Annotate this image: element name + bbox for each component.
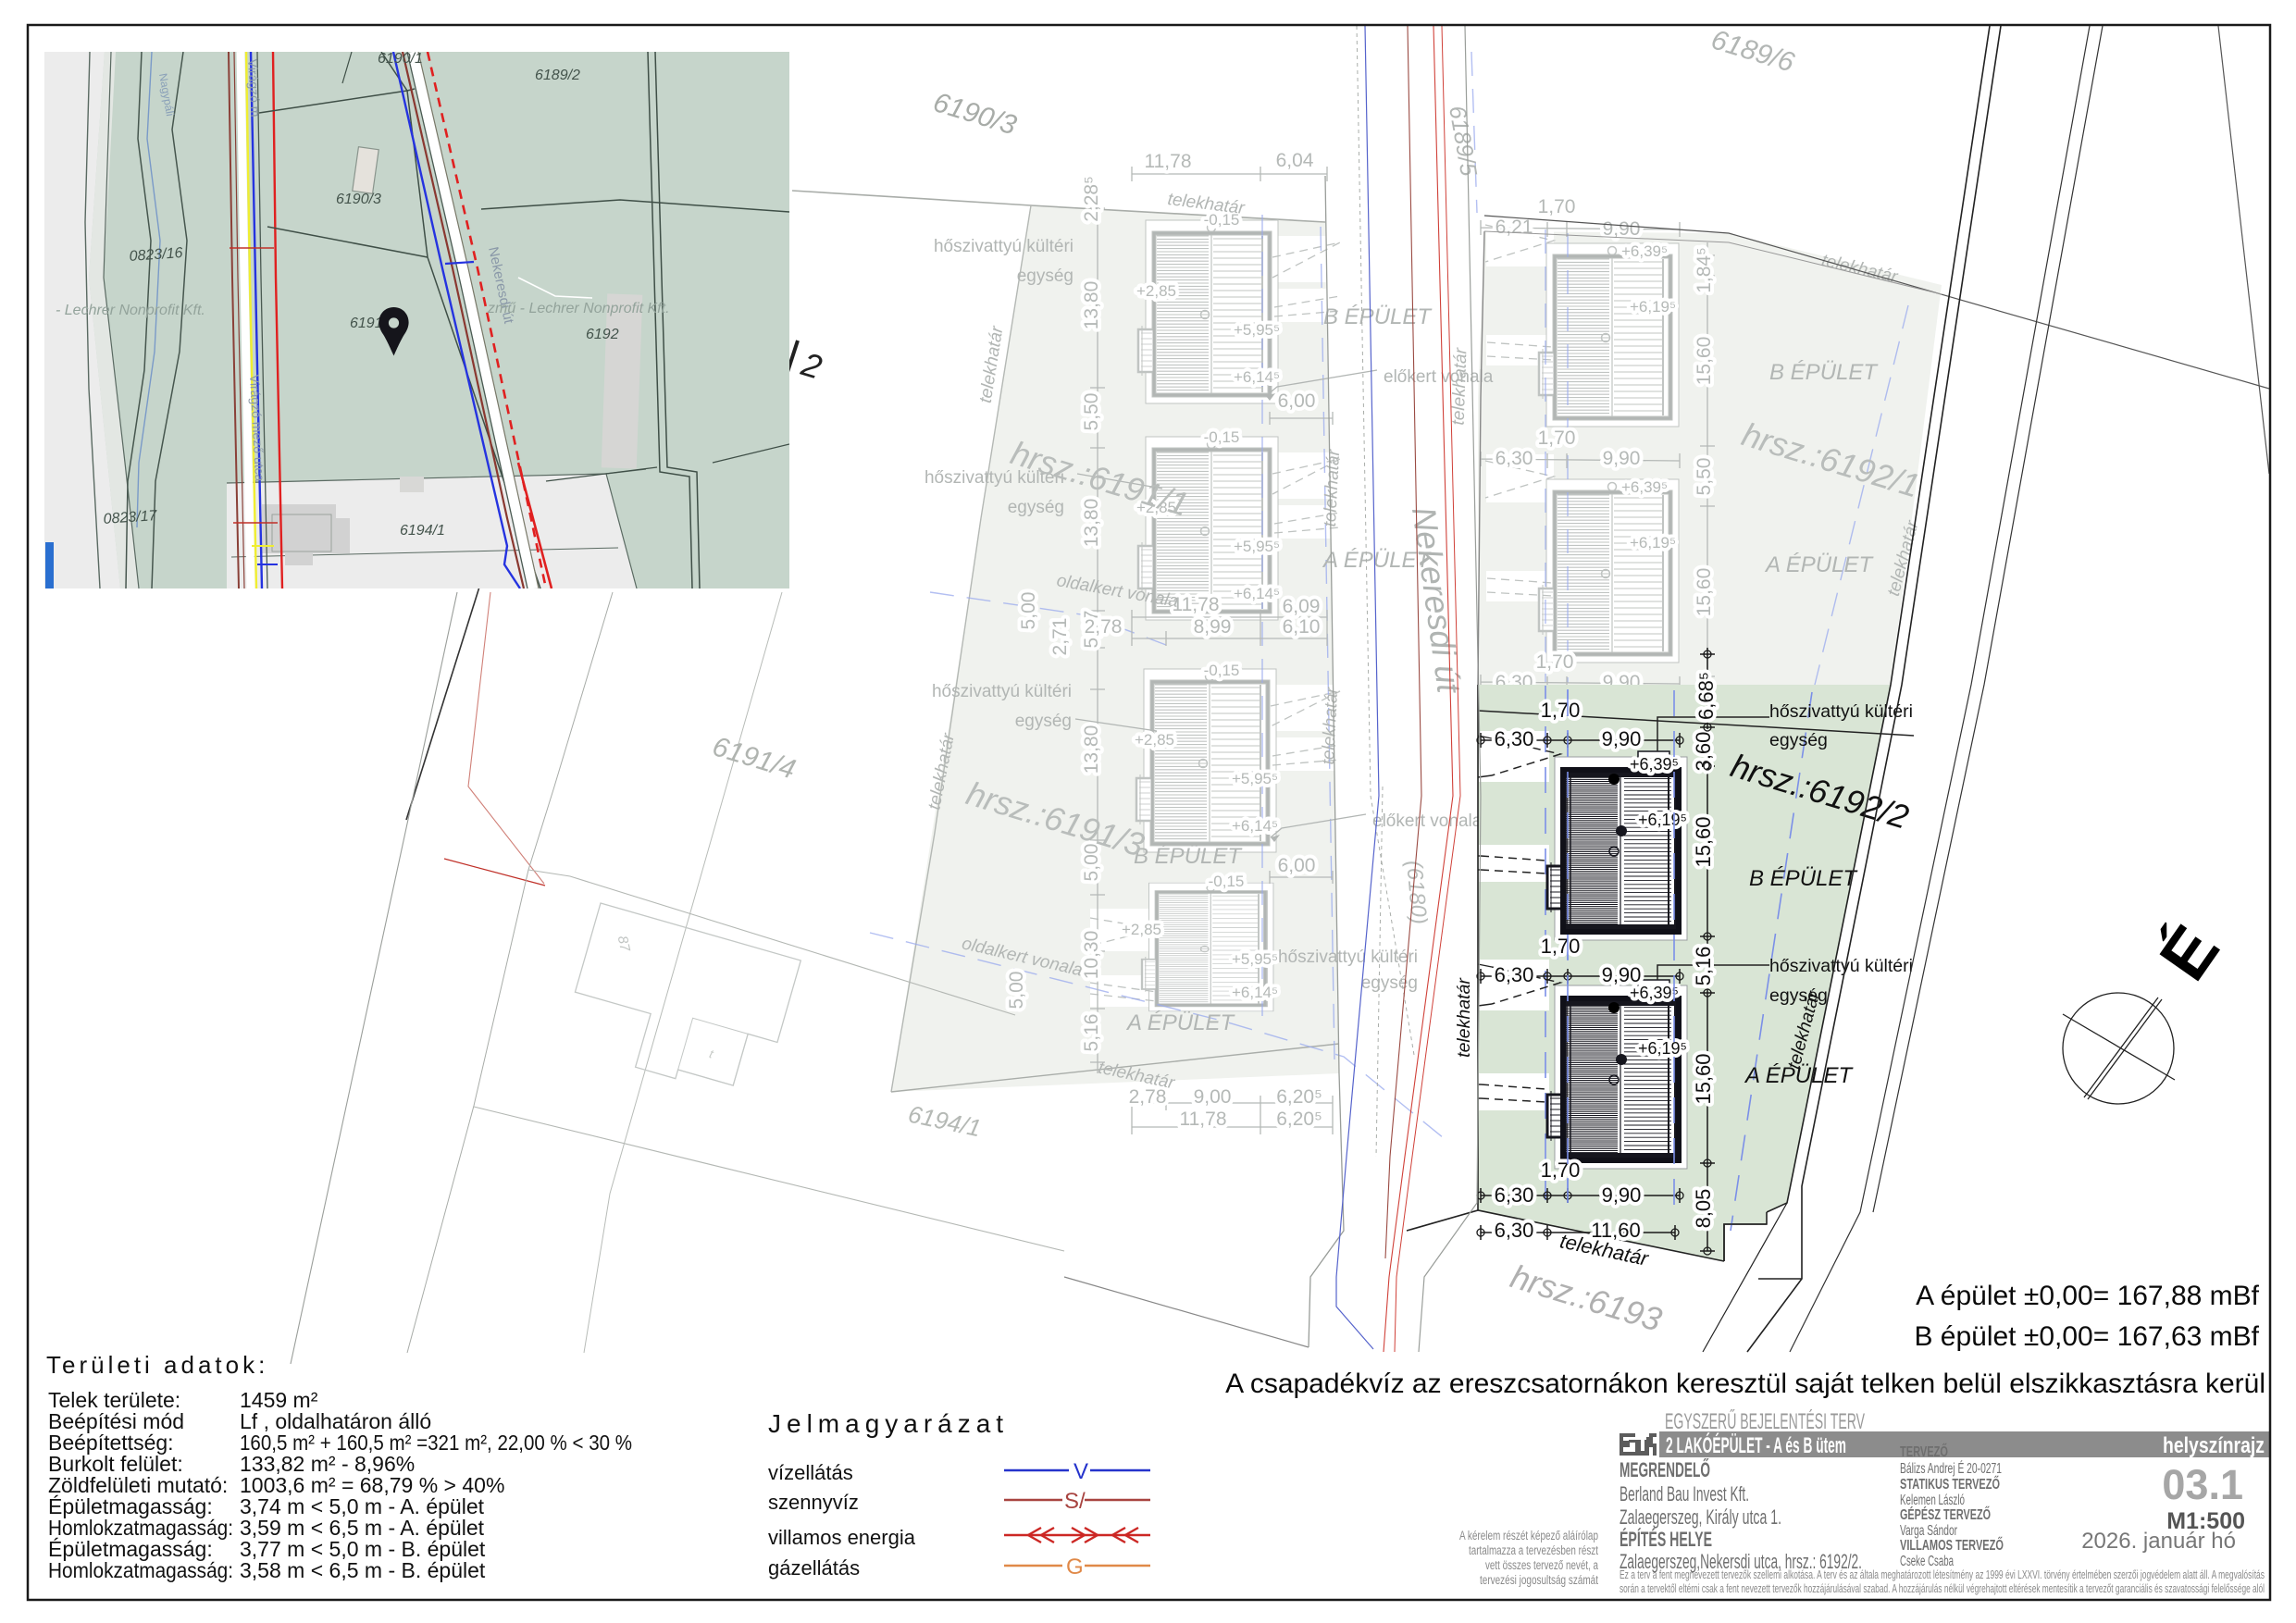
svg-text:+5,95⁵: +5,95⁵ xyxy=(1234,538,1280,555)
svg-text:+5,95⁵: +5,95⁵ xyxy=(1232,950,1278,968)
svg-text:9,90: 9,90 xyxy=(1603,218,1641,240)
svg-text:6,09: 6,09 xyxy=(1283,596,1321,617)
svg-text:9,00: 9,00 xyxy=(1194,1086,1232,1108)
svg-text:Ez a terv a fent megnevezett t: Ez a terv a fent megnevezett tervezők sz… xyxy=(1620,1568,2265,1581)
svg-text:+6,19⁵: +6,19⁵ xyxy=(1638,1039,1687,1058)
svg-text:5,00: 5,00 xyxy=(1006,972,1027,1010)
svg-text:hőszivattyú kültéri: hőszivattyú kültéri xyxy=(934,237,1074,256)
svg-text:egység: egység xyxy=(1008,498,1064,517)
svg-text:+6,14⁵: +6,14⁵ xyxy=(1232,984,1278,1001)
svg-text:6,04: 6,04 xyxy=(1276,150,1314,171)
svg-text:+6,39⁵: +6,39⁵ xyxy=(1621,478,1668,496)
svg-text:1,70: 1,70 xyxy=(1538,427,1576,449)
svg-text:telekhatár: telekhatár xyxy=(1454,977,1474,1058)
svg-text:A kérelem részét képező aláíró: A kérelem részét képező aláírólap xyxy=(1459,1529,1598,1542)
svg-text:A épület ±0,00= 167,88 mBf: A épület ±0,00= 167,88 mBf xyxy=(1916,1281,2260,1311)
svg-text:A ÉPÜLET: A ÉPÜLET xyxy=(1125,1010,1235,1035)
svg-text:11,78: 11,78 xyxy=(1173,594,1220,615)
svg-text:+6,19⁵: +6,19⁵ xyxy=(1630,534,1676,551)
svg-text:Területi adatok:: Területi adatok: xyxy=(46,1351,268,1379)
svg-text:egység: egység xyxy=(1015,712,1072,731)
svg-text:GÉPÉSZ TERVEZŐ: GÉPÉSZ TERVEZŐ xyxy=(1900,1506,1991,1523)
svg-text:VILLAMOS TERVEZŐ: VILLAMOS TERVEZŐ xyxy=(1900,1537,2004,1554)
svg-text:13,80: 13,80 xyxy=(1081,725,1102,774)
svg-text:STATIKUS TERVEZŐ: STATIKUS TERVEZŐ xyxy=(1900,1476,2000,1493)
svg-text:+6,14⁵: +6,14⁵ xyxy=(1232,817,1278,835)
svg-text:1,70: 1,70 xyxy=(1541,699,1581,722)
svg-text:Kelemen László: Kelemen László xyxy=(1900,1493,1965,1508)
svg-text:+6,14⁵: +6,14⁵ xyxy=(1234,585,1280,602)
svg-text:V: V xyxy=(1074,1459,1088,1484)
svg-text:1,70: 1,70 xyxy=(1538,196,1576,217)
svg-text:előkert vonala: előkert vonala xyxy=(1384,367,1494,387)
svg-text:6190/3: 6190/3 xyxy=(336,192,381,207)
svg-text:+5,95⁵: +5,95⁵ xyxy=(1232,770,1278,787)
svg-text:villamos energia: villamos energia xyxy=(768,1526,916,1549)
svg-text:1,70: 1,70 xyxy=(1541,1158,1581,1182)
svg-text:G: G xyxy=(1066,1555,1084,1580)
svg-text:egység: egység xyxy=(1769,730,1828,750)
svg-text:telekhatár: telekhatár xyxy=(1319,687,1342,765)
svg-text:során a tervektől eltérni csak: során a tervektől eltérni csak a fent ne… xyxy=(1620,1582,2265,1595)
svg-text:5,00: 5,00 xyxy=(1018,592,1039,630)
svg-text:helyszínrajz: helyszínrajz xyxy=(2163,1433,2265,1458)
svg-text:5,16: 5,16 xyxy=(1692,947,1715,986)
svg-text:2,28⁵: 2,28⁵ xyxy=(1081,176,1102,222)
svg-text:szennyvíz: szennyvíz xyxy=(768,1491,859,1514)
svg-text:vízellátás: vízellátás xyxy=(768,1461,853,1484)
svg-text:6191: 6191 xyxy=(350,316,383,331)
svg-text:6190/1: 6190/1 xyxy=(378,51,423,67)
svg-text:+6,39⁵: +6,39⁵ xyxy=(1630,984,1679,1002)
svg-text:Jelmagyarázat: Jelmagyarázat xyxy=(768,1409,1009,1438)
svg-text:1,70: 1,70 xyxy=(1541,935,1581,958)
svg-text:telekhatár: telekhatár xyxy=(1321,449,1344,527)
svg-text:MEGRENDELŐ: MEGRENDELŐ xyxy=(1620,1458,1710,1481)
svg-text:+6,19⁵: +6,19⁵ xyxy=(1630,298,1676,316)
svg-text:2,71: 2,71 xyxy=(1049,618,1071,656)
svg-text:egység: egység xyxy=(1017,266,1074,286)
svg-text:+6,19⁵: +6,19⁵ xyxy=(1638,811,1687,829)
svg-text:B ÉPÜLET: B ÉPÜLET xyxy=(1134,844,1243,869)
svg-text:6,30: 6,30 xyxy=(1495,1219,1534,1242)
svg-text:+5,95⁵: +5,95⁵ xyxy=(1234,321,1280,339)
svg-text:8,05: 8,05 xyxy=(1692,1189,1715,1229)
svg-text:+2,85: +2,85 xyxy=(1136,282,1176,300)
svg-text:+2,85: +2,85 xyxy=(1122,921,1161,938)
svg-text:hőszivattyú kültéri: hőszivattyú kültéri xyxy=(1769,956,1913,976)
svg-text:egység: egység xyxy=(1361,973,1418,993)
svg-text:15,60: 15,60 xyxy=(1694,568,1715,617)
svg-text:TERVEZŐ: TERVEZŐ xyxy=(1900,1443,1948,1460)
svg-text:-0,15: -0,15 xyxy=(1204,662,1240,679)
svg-text:5,50: 5,50 xyxy=(1081,393,1102,431)
svg-text:EGYSZERŰ BEJELENTÉSI TERV: EGYSZERŰ BEJELENTÉSI TERV xyxy=(1665,1409,1865,1434)
svg-text:9,90: 9,90 xyxy=(1602,727,1642,750)
svg-text:11,78: 11,78 xyxy=(1145,151,1192,172)
svg-text:zmű - Lechrer Nonprofit Kft.: zmű - Lechrer Nonprofit Kft. xyxy=(487,301,670,316)
svg-text:1,70: 1,70 xyxy=(1536,651,1574,673)
svg-text:B ÉPÜLET: B ÉPÜLET xyxy=(1323,304,1433,329)
svg-text:-0,15: -0,15 xyxy=(1204,428,1240,446)
svg-text:3,58 m < 6,5 m - B. épület: 3,58 m < 6,5 m - B. épület xyxy=(240,1558,486,1582)
svg-text:B ÉPÜLET: B ÉPÜLET xyxy=(1749,866,1858,891)
svg-text:vett összes tervező nevét, a: vett összes tervező nevét, a xyxy=(1485,1558,1598,1572)
svg-text:B épület ±0,00= 167,63 mBf: B épület ±0,00= 167,63 mBf xyxy=(1914,1321,2259,1352)
svg-text:+6,14⁵: +6,14⁵ xyxy=(1234,368,1280,386)
svg-text:9,90: 9,90 xyxy=(1602,1183,1642,1207)
svg-text:tartalmazza a tervezésben rész: tartalmazza a tervezésben részt xyxy=(1469,1543,1598,1557)
svg-text:15,60: 15,60 xyxy=(1692,1053,1715,1104)
svg-text:6,00: 6,00 xyxy=(1278,390,1316,412)
svg-text:+6,39⁵: +6,39⁵ xyxy=(1621,242,1668,260)
svg-text:1,84⁵: 1,84⁵ xyxy=(1694,247,1715,293)
svg-text:5,50: 5,50 xyxy=(1694,458,1715,496)
svg-text:11,78: 11,78 xyxy=(1180,1109,1227,1130)
svg-text:Bálizs Andrej É 20-0271: Bálizs Andrej É 20-0271 xyxy=(1900,1461,2002,1477)
svg-text:9,90: 9,90 xyxy=(1603,448,1641,469)
svg-text:6,20⁵: 6,20⁵ xyxy=(1276,1109,1322,1130)
svg-text:6,30: 6,30 xyxy=(1495,727,1534,750)
svg-text:03.1: 03.1 xyxy=(2162,1461,2243,1508)
svg-text:Cseke Csaba: Cseke Csaba xyxy=(1900,1554,1954,1569)
svg-text:10,30: 10,30 xyxy=(1081,931,1102,980)
svg-text:2,78: 2,78 xyxy=(1085,616,1123,638)
svg-text:Zalaegerszeg, Király utca 1.: Zalaegerszeg, Király utca 1. xyxy=(1620,1505,1781,1529)
svg-text:6,30: 6,30 xyxy=(1495,1183,1534,1207)
svg-text:ÉPÍTÉS HELYE: ÉPÍTÉS HELYE xyxy=(1620,1528,1712,1551)
svg-text:tervezési jogosultság számát: tervezési jogosultság számát xyxy=(1480,1573,1598,1587)
svg-text:hőszivattyú kültéri: hőszivattyú kültéri xyxy=(932,682,1072,701)
svg-text:6194/1: 6194/1 xyxy=(400,523,445,539)
svg-text:6,30: 6,30 xyxy=(1496,448,1533,469)
svg-text:13,80: 13,80 xyxy=(1081,281,1102,330)
svg-text:gázellátás: gázellátás xyxy=(768,1556,860,1580)
svg-text:A csapadékvíz az ereszcsatorná: A csapadékvíz az ereszcsatornákon keresz… xyxy=(1225,1369,2265,1399)
svg-text:6,30: 6,30 xyxy=(1495,963,1534,986)
svg-text:A ÉPÜLET: A ÉPÜLET xyxy=(1764,552,1874,577)
svg-text:15,60: 15,60 xyxy=(1692,816,1715,867)
svg-text:Homlokzatmagasság:: Homlokzatmagasság: xyxy=(48,1558,233,1582)
svg-text:13,80: 13,80 xyxy=(1081,499,1102,548)
svg-text:B ÉPÜLET: B ÉPÜLET xyxy=(1769,360,1879,385)
svg-text:+6,39⁵: +6,39⁵ xyxy=(1630,755,1679,774)
svg-text:-0,15: -0,15 xyxy=(1209,873,1245,890)
svg-text:Berland Bau Invest Kft.: Berland Bau Invest Kft. xyxy=(1620,1482,1749,1505)
svg-text:15,60: 15,60 xyxy=(1694,337,1715,386)
svg-text:6,10: 6,10 xyxy=(1283,616,1321,638)
svg-text:6,21: 6,21 xyxy=(1496,217,1533,238)
svg-text:2026. január hó: 2026. január hó xyxy=(2081,1529,2236,1554)
svg-text:5,16: 5,16 xyxy=(1081,1014,1102,1052)
svg-text:Varga Sándor: Varga Sándor xyxy=(1900,1523,1957,1539)
svg-text:6192: 6192 xyxy=(586,327,619,342)
svg-text:6,68⁵: 6,68⁵ xyxy=(1694,672,1718,720)
svg-text:8,99: 8,99 xyxy=(1194,616,1232,638)
svg-text:2 LAKÓÉPÜLET - A és B ütem: 2 LAKÓÉPÜLET - A és B ütem xyxy=(1666,1432,1846,1458)
svg-text:6189/2: 6189/2 xyxy=(535,68,580,83)
svg-text:előkert vonala: előkert vonala xyxy=(1372,811,1483,831)
svg-text:6,00: 6,00 xyxy=(1278,855,1316,876)
svg-text:- Lechrer Nonprofit Kft.: - Lechrer Nonprofit Kft. xyxy=(56,303,205,318)
svg-text:S/: S/ xyxy=(1064,1489,1086,1514)
svg-text:hőszivattyú kültéri: hőszivattyú kültéri xyxy=(1769,701,1913,722)
svg-text:Virágzó m: Virágzó m xyxy=(245,58,263,118)
svg-text:+2,85: +2,85 xyxy=(1135,731,1174,749)
svg-text:6,20⁵: 6,20⁵ xyxy=(1276,1086,1322,1108)
